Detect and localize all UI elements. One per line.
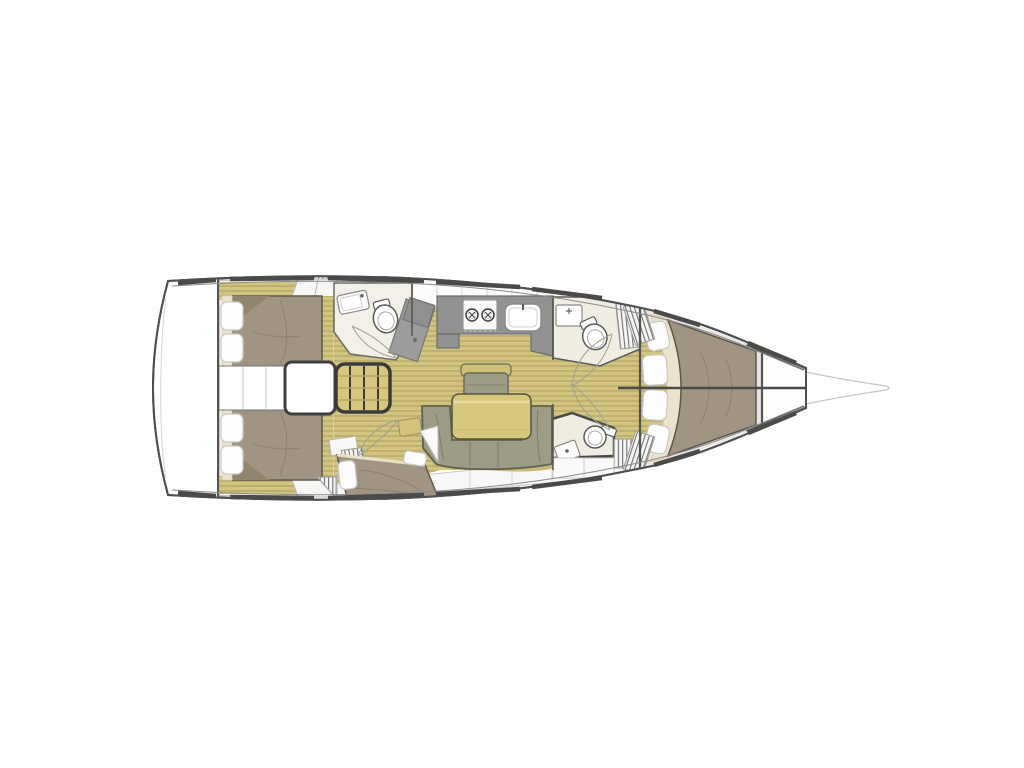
- pillow: [221, 334, 243, 362]
- engine-box: [285, 362, 335, 414]
- boat-floorplan-image: [0, 0, 1024, 768]
- pillow: [221, 414, 243, 442]
- aft-cabin-port-side-shelf: [322, 296, 333, 366]
- pillow: [642, 354, 668, 386]
- pillow: [403, 451, 427, 467]
- side-shelf: [398, 418, 422, 437]
- aft-cabin-port: [219, 279, 337, 366]
- galley-counter-stub: [437, 334, 459, 348]
- pillow: [642, 389, 668, 421]
- shower-drain: [413, 338, 417, 342]
- floorplan-svg: [0, 0, 1024, 768]
- interior: [161, 271, 806, 502]
- companionway-steps: [336, 364, 390, 412]
- pillow: [338, 460, 358, 490]
- pillow: [221, 446, 243, 474]
- aft-cabin-starboard: [219, 410, 337, 497]
- bowsprit-outline: [806, 372, 889, 404]
- pillow: [221, 302, 243, 330]
